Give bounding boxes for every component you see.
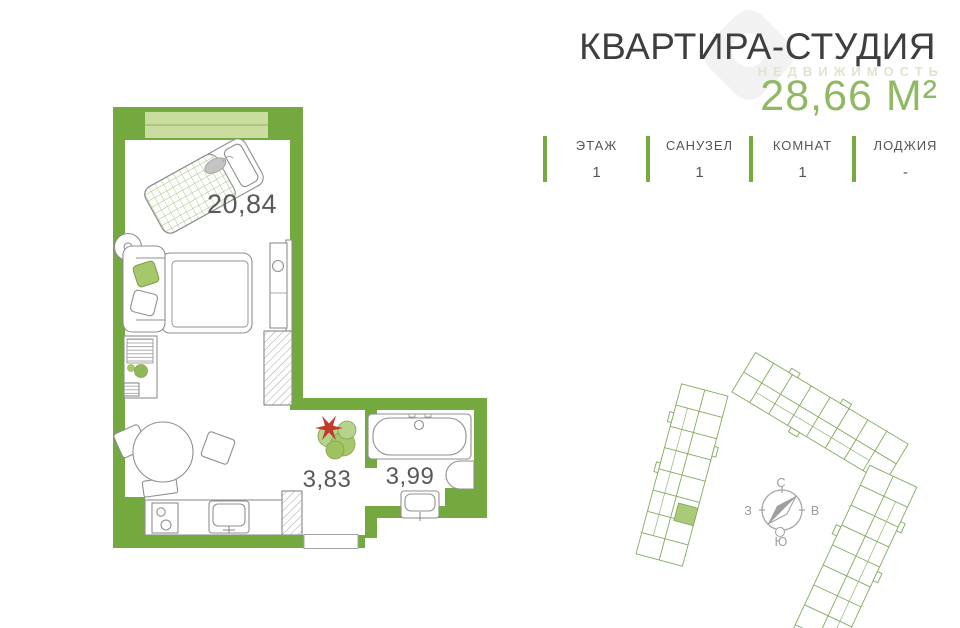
sofa [123, 246, 165, 332]
fridge [282, 491, 302, 535]
compass-needle-light [768, 496, 796, 524]
dining-table [133, 422, 193, 482]
building-wing-top [729, 348, 910, 488]
spec-label: САНУЗЕЛ [666, 138, 733, 153]
specs-table: ЭТАЖ 1 САНУЗЕЛ 1 КОМНАТ 1 ЛОДЖИЯ - [543, 136, 955, 182]
room-label-living: 20,84 [207, 189, 277, 219]
tv-unit [270, 240, 292, 332]
toilet [446, 461, 474, 489]
dining-chair [200, 431, 235, 465]
spec-column-loggia: ЛОДЖИЯ - [852, 136, 955, 182]
desk-shelf [124, 336, 157, 398]
spec-column-rooms: КОМНАТ 1 [749, 136, 852, 182]
spec-value: 1 [798, 164, 806, 181]
compass-rose [759, 487, 805, 537]
window [145, 112, 268, 138]
bed [142, 136, 267, 237]
kitchen-counter [145, 500, 300, 535]
room-label-bath: 3,99 [386, 463, 435, 490]
spec-value: 1 [695, 164, 703, 181]
spec-label: ЛОДЖИЯ [874, 138, 938, 153]
plant-large [135, 365, 148, 378]
hall-plant [315, 416, 356, 459]
building-wing-left [632, 383, 732, 567]
compass-west-label: З [744, 504, 752, 518]
daybed [161, 253, 252, 333]
entry-door [304, 535, 358, 549]
spec-value: 1 [592, 164, 600, 181]
spec-label: КОМНАТ [773, 138, 832, 153]
wardrobe [264, 331, 292, 405]
compass-east-label: В [811, 504, 819, 518]
room-label-hall: 3,83 [303, 466, 352, 493]
compass-south-label: Ю [775, 535, 788, 549]
page-title: КВАРТИРА-СТУДИЯ [579, 26, 936, 68]
site-plan: С Ю З В [632, 348, 921, 628]
spec-value: - [903, 164, 908, 181]
stove [152, 503, 178, 533]
spec-column-bathrooms: САНУЗЕЛ 1 [646, 136, 749, 182]
plant-small [127, 364, 135, 372]
apartment-area: 28,66 М² [760, 72, 938, 121]
spec-column-floor: ЭТАЖ 1 [543, 136, 646, 182]
page: КВАРТИРА-СТУДИЯ НЕДВИЖИМОСТЬ 28,66 М² ЭТ… [0, 0, 960, 628]
compass-north-label: С [776, 476, 785, 490]
kitchen-sink [209, 501, 249, 533]
dining-set [113, 422, 236, 497]
bathroom-sink [401, 491, 439, 521]
building-wing-right [783, 463, 922, 628]
bathtub [368, 414, 471, 459]
spec-label: ЭТАЖ [576, 138, 618, 153]
